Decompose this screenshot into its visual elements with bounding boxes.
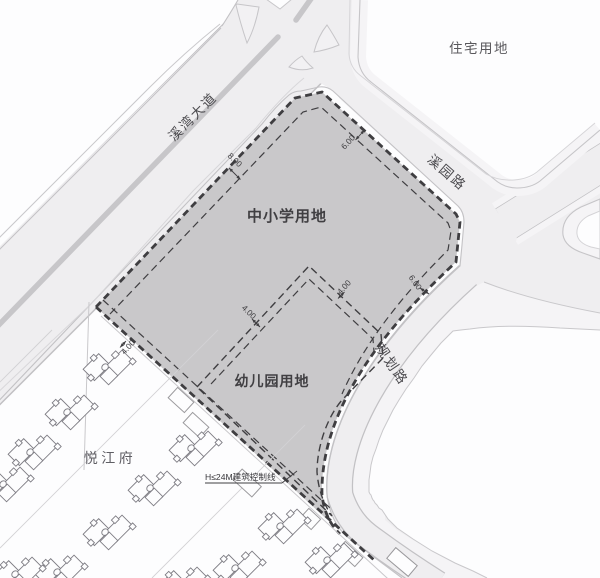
svg-text:中小学用地: 中小学用地: [247, 207, 327, 225]
svg-text:住宅用地: 住宅用地: [449, 41, 509, 56]
svg-text:幼儿园用地: 幼儿园用地: [235, 373, 310, 389]
svg-text:悦江府: 悦江府: [84, 450, 137, 466]
svg-text:H≤24M建筑控制线: H≤24M建筑控制线: [205, 471, 276, 482]
